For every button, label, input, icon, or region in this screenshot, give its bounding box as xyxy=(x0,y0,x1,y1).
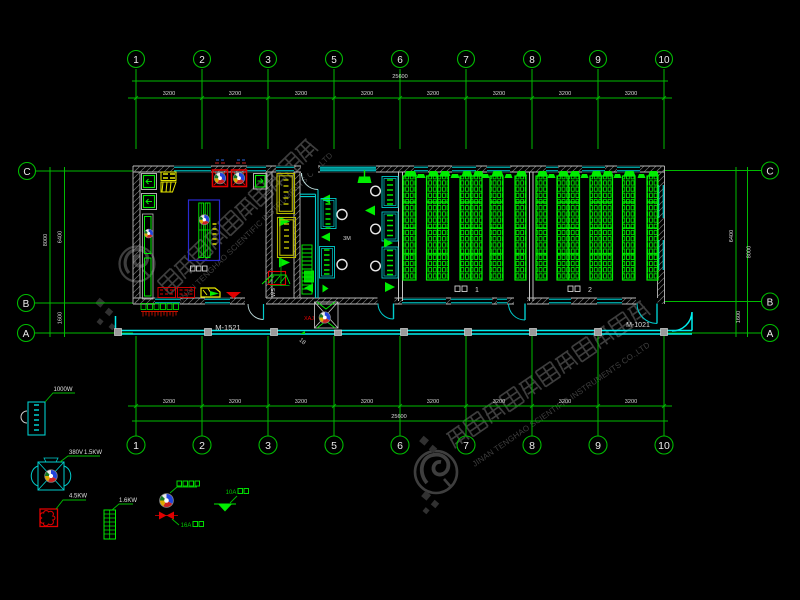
svg-text:25600: 25600 xyxy=(392,74,408,80)
svg-text:C: C xyxy=(23,167,30,178)
svg-text:2: 2 xyxy=(588,287,592,294)
svg-text:9: 9 xyxy=(595,55,601,66)
svg-text:1: 1 xyxy=(133,440,139,452)
svg-text:3200: 3200 xyxy=(229,91,241,97)
svg-text:8000: 8000 xyxy=(747,246,753,258)
svg-text:3200: 3200 xyxy=(559,399,571,405)
svg-text:3200: 3200 xyxy=(163,91,175,97)
svg-text:2: 2 xyxy=(199,440,205,452)
svg-text:3200: 3200 xyxy=(625,91,637,97)
svg-text:3200: 3200 xyxy=(295,399,307,405)
svg-text:6400: 6400 xyxy=(729,230,735,242)
svg-text:3M: 3M xyxy=(343,236,351,242)
svg-text:3200: 3200 xyxy=(295,91,307,97)
svg-text:WS: WS xyxy=(271,288,277,297)
svg-text:A: A xyxy=(23,329,30,340)
svg-text:M-1521: M-1521 xyxy=(215,323,240,332)
svg-text:M-1021: M-1021 xyxy=(626,322,650,329)
svg-text:2: 2 xyxy=(199,55,205,66)
svg-text:5: 5 xyxy=(331,55,337,66)
svg-text:10A: 10A xyxy=(226,490,237,496)
svg-text:3: 3 xyxy=(265,440,271,452)
svg-text:3200: 3200 xyxy=(361,91,373,97)
svg-text:3: 3 xyxy=(265,55,271,66)
svg-text:3200: 3200 xyxy=(229,399,241,405)
svg-text:380V: 380V xyxy=(69,450,83,456)
svg-text:B: B xyxy=(23,299,30,310)
svg-text:8: 8 xyxy=(529,55,535,66)
svg-text:16A: 16A xyxy=(181,523,192,529)
svg-text:6400: 6400 xyxy=(58,231,64,243)
svg-text:3200: 3200 xyxy=(625,399,637,405)
svg-text:1600: 1600 xyxy=(58,312,64,324)
svg-text:9: 9 xyxy=(595,440,601,452)
svg-text:3200: 3200 xyxy=(493,399,505,405)
svg-text:1.5KW: 1.5KW xyxy=(84,450,102,456)
svg-text:1: 1 xyxy=(133,55,139,66)
svg-text:A: A xyxy=(767,329,774,340)
svg-text:4.5KW: 4.5KW xyxy=(69,494,87,500)
svg-text:1.6KW: 1.6KW xyxy=(119,498,137,504)
svg-text:6: 6 xyxy=(397,55,403,66)
svg-text:25600: 25600 xyxy=(391,414,407,420)
svg-text:1: 1 xyxy=(475,287,479,294)
svg-text:C: C xyxy=(766,167,773,178)
svg-text:3200: 3200 xyxy=(361,399,373,405)
svg-text:10: 10 xyxy=(658,55,670,66)
svg-text:1000W: 1000W xyxy=(53,387,72,393)
svg-text:3200: 3200 xyxy=(427,91,439,97)
svg-text:10: 10 xyxy=(658,440,670,452)
svg-text:3200: 3200 xyxy=(493,91,505,97)
svg-text:6: 6 xyxy=(397,440,403,452)
svg-text:3200: 3200 xyxy=(559,91,571,97)
svg-text:7: 7 xyxy=(463,55,469,66)
svg-text:B: B xyxy=(767,298,774,309)
svg-text:8: 8 xyxy=(529,440,535,452)
svg-text:8000: 8000 xyxy=(43,234,49,246)
svg-text:5: 5 xyxy=(331,440,337,452)
svg-text:3200: 3200 xyxy=(427,399,439,405)
svg-text:7: 7 xyxy=(463,440,469,452)
svg-text:XAJ: XAJ xyxy=(304,316,314,322)
svg-text:1600: 1600 xyxy=(736,311,742,323)
svg-text:3200: 3200 xyxy=(163,399,175,405)
